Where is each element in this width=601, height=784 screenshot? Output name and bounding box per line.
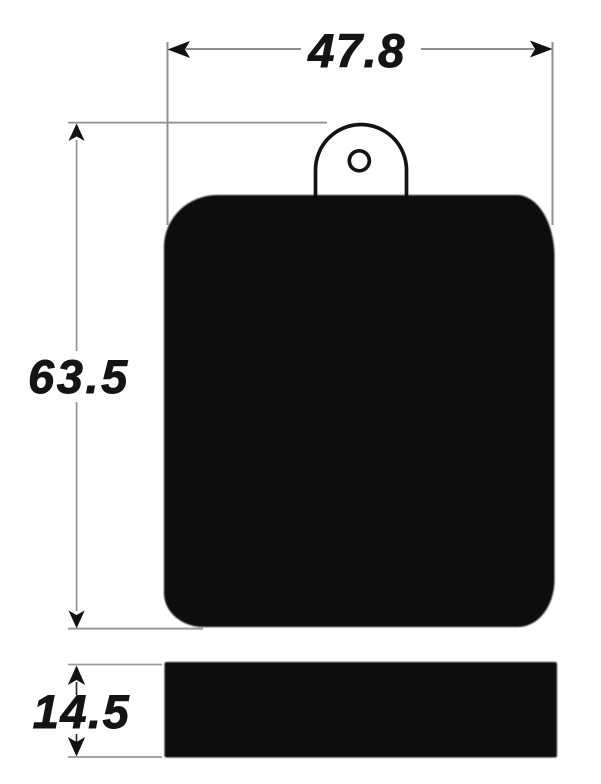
svg-text:63.5: 63.5 [28,350,130,403]
svg-text:47.8: 47.8 [307,24,405,77]
svg-text:14.5: 14.5 [33,685,130,738]
